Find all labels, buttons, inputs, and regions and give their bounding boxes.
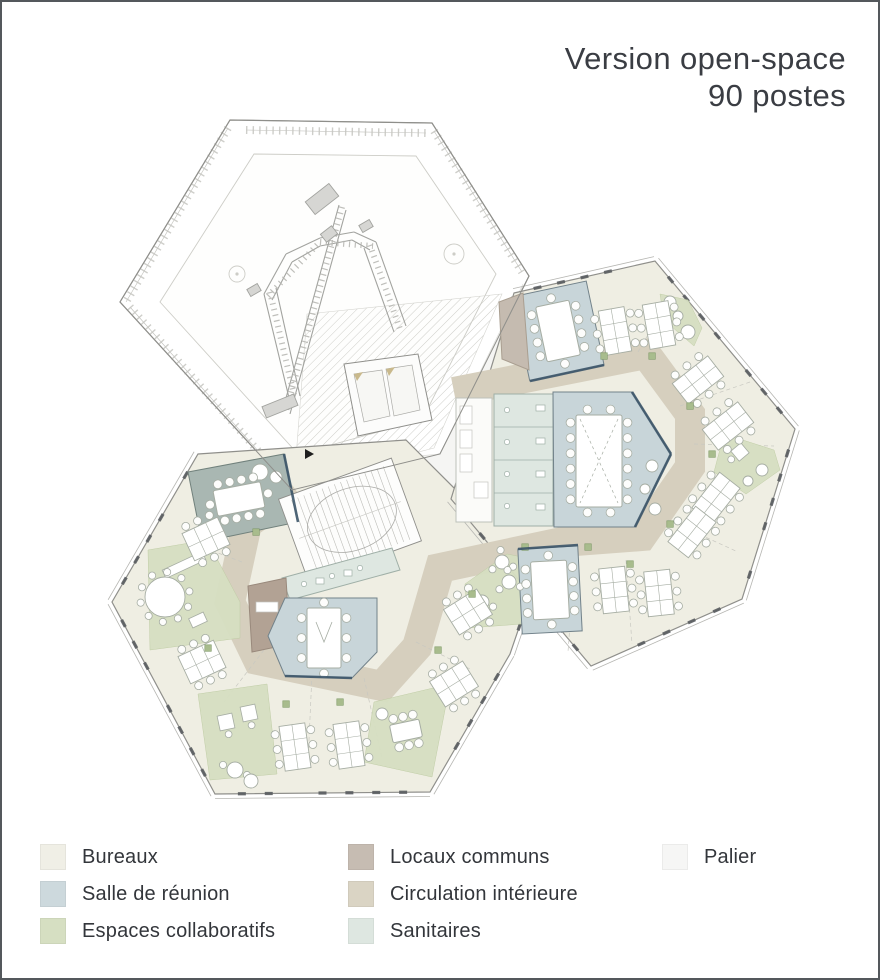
plant-icon bbox=[627, 561, 634, 568]
title-line-1: Version open-space bbox=[565, 40, 846, 77]
legend-label: Locaux communs bbox=[390, 846, 550, 869]
legend-label: Bureaux bbox=[82, 846, 158, 869]
legend-item: Sanitaires bbox=[348, 918, 578, 944]
legend-swatch bbox=[40, 881, 66, 907]
legend-item: Circulation intérieure bbox=[348, 881, 578, 907]
plan-sheet: Version open-space 90 postes BureauxSall… bbox=[0, 0, 880, 980]
legend-swatch bbox=[348, 844, 374, 870]
legend-label: Sanitaires bbox=[390, 920, 481, 943]
plant-icon bbox=[709, 451, 716, 458]
legend-column-2: Locaux communsCirculation intérieureSani… bbox=[348, 844, 578, 955]
round-table bbox=[646, 460, 658, 472]
plant-icon bbox=[585, 544, 592, 551]
plant-icon bbox=[649, 353, 656, 360]
meeting-table bbox=[566, 405, 632, 517]
legend-item: Salle de réunion bbox=[40, 881, 275, 907]
legend-swatch bbox=[662, 844, 688, 870]
legend-column-3: Palier bbox=[662, 844, 756, 881]
legend: BureauxSalle de réunionEspaces collabora… bbox=[2, 844, 878, 964]
service-block-east bbox=[456, 398, 492, 522]
legend-item: Bureaux bbox=[40, 844, 275, 870]
plant-icon bbox=[667, 521, 674, 528]
legend-item: Palier bbox=[662, 844, 756, 870]
round-table bbox=[756, 464, 768, 476]
round-table bbox=[649, 503, 661, 515]
round-table bbox=[376, 708, 388, 720]
legend-item: Locaux communs bbox=[348, 844, 578, 870]
legend-swatch bbox=[40, 918, 66, 944]
round-table bbox=[640, 484, 650, 494]
legend-label: Circulation intérieure bbox=[390, 883, 578, 906]
plant-icon bbox=[253, 529, 259, 536]
plant-icon bbox=[283, 701, 290, 708]
legend-swatch bbox=[348, 918, 374, 944]
legend-swatch bbox=[348, 881, 374, 907]
sanitaires-east bbox=[494, 394, 553, 526]
round-table bbox=[244, 774, 258, 788]
plant-icon bbox=[601, 353, 608, 360]
legend-swatch bbox=[40, 844, 66, 870]
legend-item: Espaces collaboratifs bbox=[40, 918, 275, 944]
legend-label: Palier bbox=[704, 846, 756, 869]
title-line-2: 90 postes bbox=[565, 77, 846, 114]
page-title: Version open-space 90 postes bbox=[565, 40, 846, 114]
legend-column-1: BureauxSalle de réunionEspaces collabora… bbox=[40, 844, 275, 955]
plant-icon bbox=[687, 403, 694, 410]
floor-plan bbox=[2, 2, 880, 980]
plant-icon bbox=[435, 647, 442, 654]
plant-icon bbox=[337, 699, 344, 706]
legend-label: Salle de réunion bbox=[82, 883, 230, 906]
plant-icon bbox=[469, 591, 476, 598]
legend-label: Espaces collaboratifs bbox=[82, 920, 275, 943]
plant-icon bbox=[205, 645, 212, 652]
round-table bbox=[743, 476, 753, 486]
